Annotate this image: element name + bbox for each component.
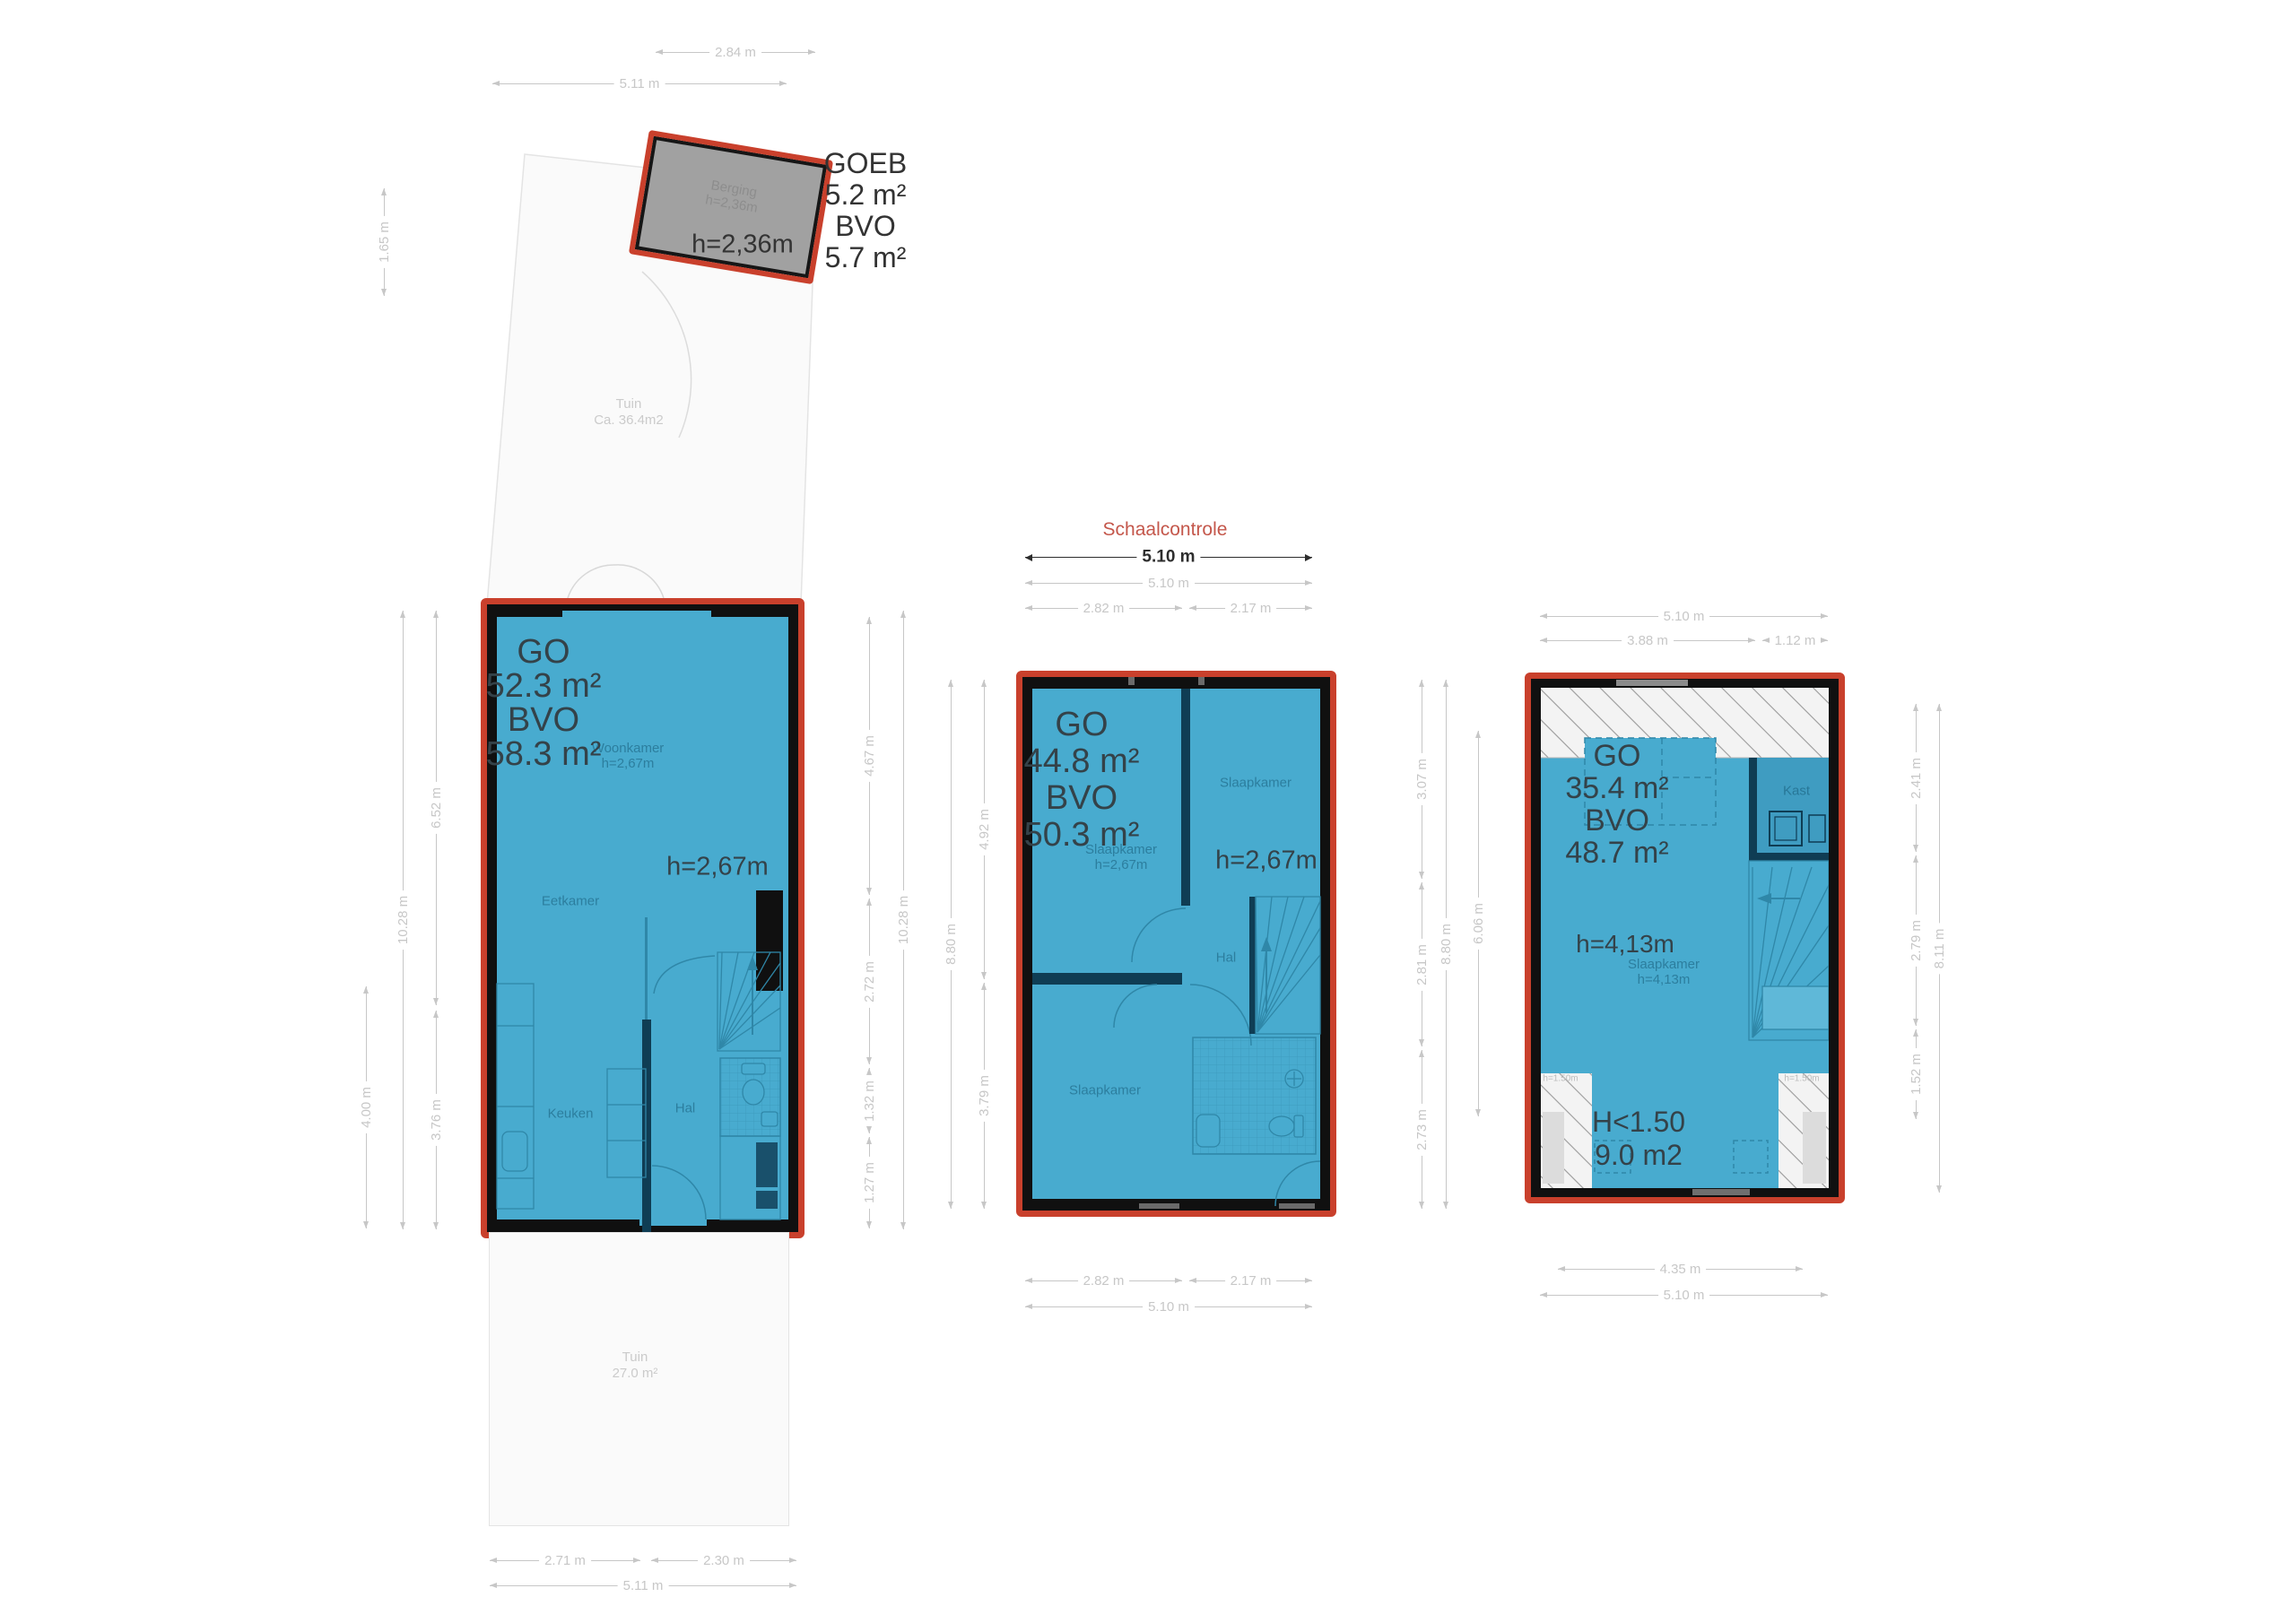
dim-gf-left-a: 4.00 m	[366, 986, 367, 1228]
hatch-label-left: h=1.50m	[1543, 1072, 1578, 1087]
garden-bottom-label: Tuin27.0 m²	[613, 1350, 658, 1382]
dim-ff-bottom-full: 5.10 m	[1025, 1306, 1312, 1307]
dim-attic-top-full: 5.10 m	[1540, 616, 1828, 617]
room-label-woonkamer: Woonkamerh=2,67m	[592, 741, 665, 771]
bathroom	[720, 1058, 780, 1136]
meter-icon	[756, 1191, 778, 1209]
dim-gf-right-full: 10.28 m	[903, 611, 904, 1229]
room-label-slaapkamer-top: Slaapkamer	[1220, 776, 1291, 791]
sink-icon	[761, 1112, 778, 1126]
shed-height-label: h=2,36m	[691, 230, 794, 260]
dim-gf-right-s2: 2.72 m	[869, 898, 870, 1064]
toilet-icon	[1269, 1116, 1294, 1136]
dim-shed-height: 1.65 m	[384, 188, 385, 296]
room-label-hal-gf: Hal	[675, 1101, 696, 1116]
chimney	[756, 890, 783, 991]
schaalcontrole-title: Schaalcontrole	[1103, 519, 1228, 541]
dim-attic-left: 6.06 m	[1478, 731, 1479, 1116]
chimney-block-right	[1803, 1112, 1826, 1184]
bottom-window-notch	[1692, 1189, 1750, 1195]
bathroom	[1193, 1037, 1316, 1154]
garden-top-label: TuinCa. 36.4m2	[594, 396, 664, 429]
toilet-tank-icon	[1294, 1115, 1303, 1137]
kast-wall	[1749, 758, 1757, 853]
dim-gf-right-s1: 4.67 m	[869, 617, 870, 895]
dim-attic-right-s3: 1.52 m	[1916, 1029, 1917, 1119]
room-label-kast: Kast	[1783, 784, 1810, 799]
dim-gf-right-s4: 1.27 m	[869, 1137, 870, 1228]
dim-ff-left-bottom: 3.79 m	[984, 983, 985, 1209]
dim-attic-right-s1: 2.41 m	[1916, 704, 1917, 852]
hatch-label-right: h=1.50m	[1784, 1072, 1819, 1087]
toilet-tank-icon	[742, 1063, 765, 1074]
bedroom-lower-wall	[1032, 973, 1182, 985]
dim-ff-top-a: 2.82 m	[1025, 608, 1182, 609]
dim-attic-bottom-a: 4.35 m	[1558, 1269, 1803, 1270]
dim-gf-left-top: 6.52 m	[436, 611, 437, 1005]
gf-area-labels: GO52.3 m² BVO58.3 m²	[486, 635, 602, 771]
room-label-slaapkamer-attic: Slaapkamerh=4,13m	[1628, 957, 1700, 987]
dim-ff-left-full: 8.80 m	[951, 680, 952, 1209]
dim-ff-bottom-a: 2.82 m	[1025, 1280, 1182, 1281]
hal-wall-thin	[645, 917, 648, 1025]
dim-ff-left-top: 4.92 m	[984, 680, 985, 979]
stair-opening	[1762, 986, 1829, 1029]
stairs-rail	[1249, 897, 1256, 1034]
room-label-slaapkamer-bottom: Slaapkamer	[1069, 1083, 1141, 1098]
floorplan-canvas: TuinCa. 36.4m2 2.84 m 5.11 m 1.65 m Berg…	[0, 0, 2296, 1623]
dim-attic-right-s2: 2.79 m	[1916, 855, 1917, 1026]
toilet-icon	[743, 1080, 764, 1105]
dim-gf-right-s3: 1.32 m	[869, 1068, 870, 1133]
room-label-eetkamer: Eetkamer	[542, 894, 599, 909]
dim-scale-check: 5.10 m	[1025, 557, 1312, 558]
dim-gf-left-full: 10.28 m	[403, 611, 404, 1229]
dim-attic-bottom-full: 5.10 m	[1540, 1295, 1828, 1296]
dim-gf-bottom-b: 2.30 m	[651, 1560, 796, 1561]
dim-attic-top-a: 3.88 m	[1540, 640, 1755, 641]
plan-attic: GO35.4 m² BVO48.7 m² Kast h=4,13m Slaapk…	[1525, 673, 1845, 1203]
kast-lower-wall	[1749, 853, 1829, 861]
room-label-keuken: Keuken	[548, 1107, 594, 1122]
attic-low-height-label: H<1.509.0 m2	[1592, 1106, 1685, 1172]
dim-shed-total-width: 5.11 m	[492, 83, 787, 84]
garden-bottom: Tuin27.0 m²	[489, 1232, 789, 1526]
dim-ff-right-full: 8.80 m	[1446, 680, 1447, 1209]
ff-area-labels: GO44.8 m² BVO50.3 m²	[1024, 707, 1140, 854]
sink-icon	[1196, 1115, 1220, 1147]
kast-area	[1757, 758, 1829, 853]
dim-gf-bottom-a: 2.71 m	[490, 1560, 640, 1561]
shed-area-labels: GOEB5.2 m² BVO5.7 m²	[824, 148, 907, 273]
plan-ground-floor: GO52.3 m² BVO58.3 m² Woonkamerh=2,67m h=…	[481, 598, 804, 1238]
dim-attic-top-b: 1.12 m	[1762, 640, 1828, 641]
room-label-hal-ff: Hal	[1216, 950, 1237, 966]
roof-window-notch	[1616, 680, 1688, 686]
attic-area-labels: GO35.4 m² BVO48.7 m²	[1565, 740, 1668, 869]
bedroom-divider-wall	[1181, 689, 1190, 906]
ff-height-label: h=2,67m	[1215, 846, 1318, 876]
dim-ff-right-s2: 2.81 m	[1422, 882, 1422, 1046]
plan-first-floor: GO44.8 m² BVO50.3 m² Slaapkamer Slaapkam…	[1016, 671, 1336, 1217]
dim-ff-right-s1: 3.07 m	[1422, 680, 1422, 879]
dim-attic-right-full: 8.11 m	[1939, 704, 1940, 1193]
dim-shed-width: 2.84 m	[656, 52, 815, 53]
dim-gf-left-bottom: 3.76 m	[436, 1011, 437, 1229]
shed-room-label: Bergingh=2,36m	[704, 178, 761, 216]
dim-ff-top-b: 2.17 m	[1189, 608, 1312, 609]
chimney-block-left	[1543, 1112, 1564, 1184]
dim-ff-bottom-b: 2.17 m	[1189, 1280, 1312, 1281]
dim-ff-right-s3: 2.73 m	[1422, 1050, 1422, 1209]
dim-ff-top-full: 5.10 m	[1025, 583, 1312, 584]
boiler-icon	[756, 1142, 778, 1187]
dim-gf-bottom-full: 5.11 m	[490, 1585, 796, 1586]
hal-wall	[642, 1020, 651, 1232]
attic-height-label: h=4,13m	[1576, 930, 1674, 959]
gf-height-label: h=2,67m	[666, 853, 769, 882]
